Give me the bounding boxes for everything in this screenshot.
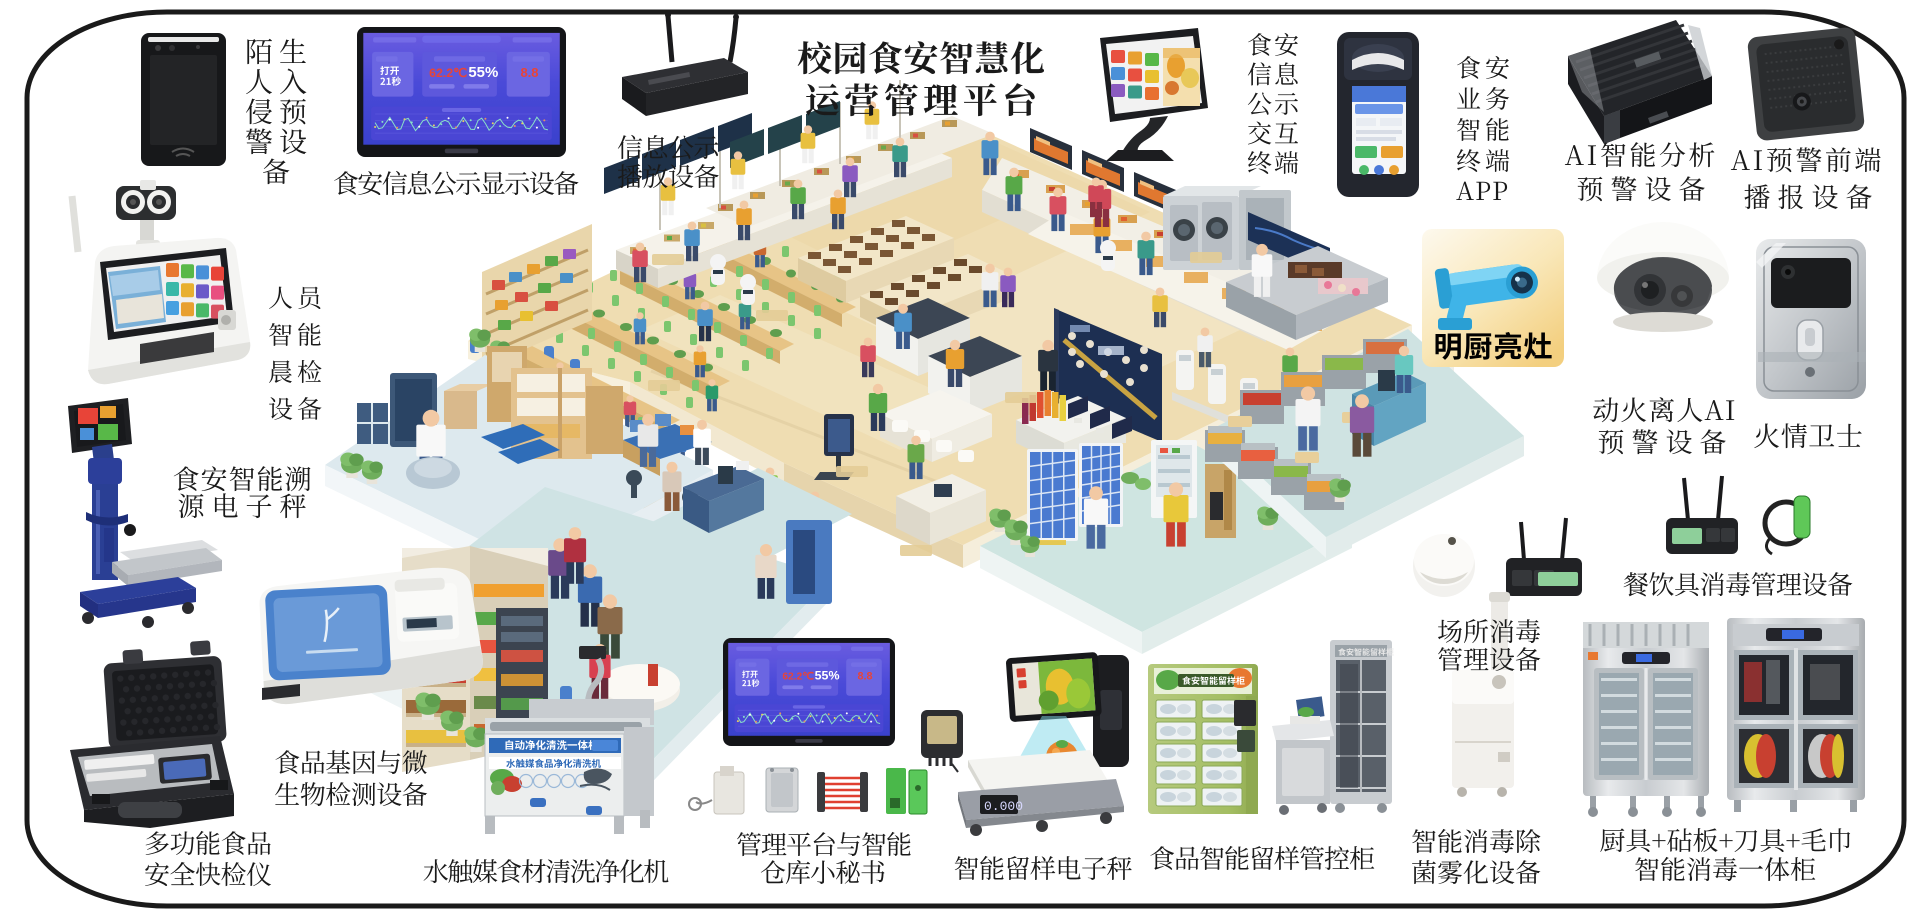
svg-text:62.2℃: 62.2℃ xyxy=(429,66,467,80)
svg-text:62.2℃: 62.2℃ xyxy=(782,671,813,682)
svg-text:55%: 55% xyxy=(815,668,840,682)
svg-text:55%: 55% xyxy=(468,64,498,81)
svg-text:0.000: 0.000 xyxy=(984,799,1023,814)
svg-text:8.8: 8.8 xyxy=(520,65,538,80)
svg-text:8.8: 8.8 xyxy=(858,670,873,682)
